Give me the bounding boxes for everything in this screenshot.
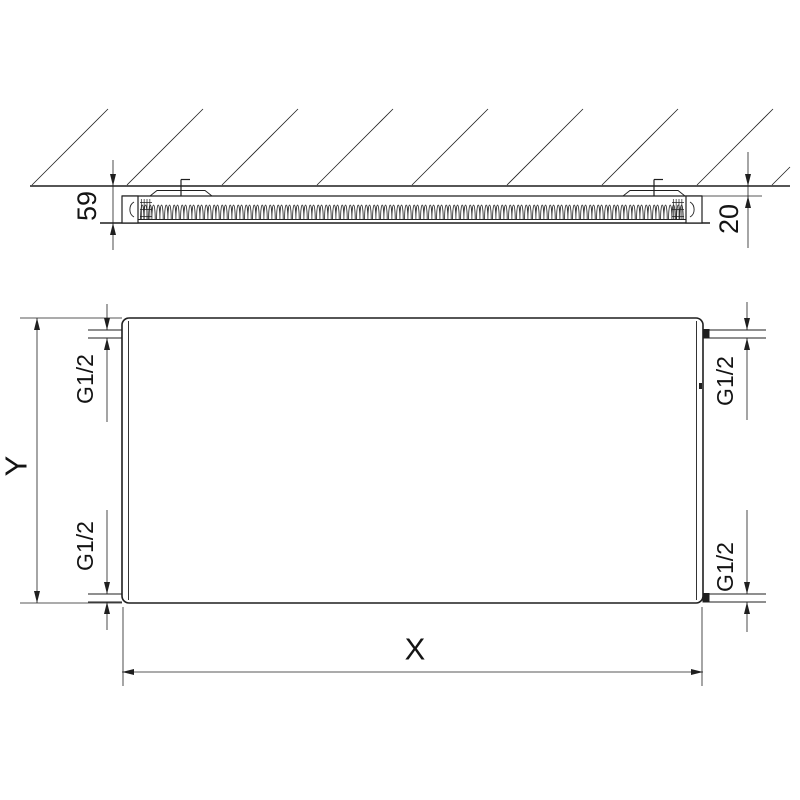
radiator-technical-drawing: 59 20 — [0, 0, 800, 800]
arrowhead-right — [691, 669, 703, 675]
top-view-section: 59 20 — [30, 109, 790, 250]
arrowhead-up — [34, 318, 40, 330]
connection-stub-top-left — [88, 330, 122, 338]
thread-size: G1/2 — [72, 354, 98, 404]
hatch-line — [602, 109, 678, 185]
thread-dimension-top-right: G1/2 — [712, 302, 750, 420]
radiator-technical-drawing-sheet: 59 20 — [0, 0, 800, 800]
thread-size: G1/2 — [72, 521, 98, 571]
wall-gap-dimension: 20 — [702, 152, 762, 248]
arrowhead-left — [122, 669, 134, 675]
hatch-line — [222, 109, 298, 185]
convector-fins-dense-left — [140, 199, 152, 220]
convector-fins-dense-right — [672, 199, 684, 220]
wall-gap-value: 20 — [714, 204, 744, 234]
stub-lines — [88, 330, 122, 338]
hatch-line — [772, 167, 790, 185]
width-dimension: X — [122, 607, 703, 686]
arrowhead-down — [110, 174, 116, 186]
arrowhead-up — [104, 602, 110, 614]
arrowhead-up — [744, 602, 750, 614]
mounting-bracket-right — [623, 180, 685, 197]
thread-dimension-bottom-right: G1/2 — [712, 510, 750, 632]
stub-lines — [703, 330, 766, 338]
width-value: X — [405, 632, 426, 667]
thread-dimension-top-left: G1/2 — [72, 304, 110, 422]
convector-fins — [140, 199, 684, 220]
arrowhead-down — [104, 582, 110, 594]
wall-hatching — [32, 109, 790, 185]
hatch-line — [32, 109, 108, 185]
hatch-line — [697, 109, 773, 185]
arrowhead-down — [744, 582, 750, 594]
front-view: Y X G1/2 G1/2 — [0, 302, 766, 686]
connection-stub-bottom-left — [88, 594, 122, 602]
arrowhead-down — [34, 591, 40, 603]
thread-size: G1/2 — [712, 356, 738, 406]
height-dimension: Y — [0, 318, 122, 603]
thread-size: G1/2 — [712, 542, 738, 592]
hatch-line — [412, 109, 488, 185]
stub-lines — [703, 594, 766, 602]
thread-dimension-bottom-left: G1/2 — [72, 510, 110, 630]
radiator-panel — [122, 318, 703, 603]
hatch-line — [127, 109, 203, 185]
height-value: Y — [0, 456, 34, 477]
hatch-line — [317, 109, 393, 185]
arrowhead-up — [110, 223, 116, 235]
hatch-line — [507, 109, 583, 185]
arrowhead-down — [744, 318, 750, 330]
connection-stub-bottom-right — [703, 593, 767, 603]
connection-stub-top-right — [703, 329, 767, 339]
arrowhead-down — [104, 318, 110, 330]
mounting-bracket-left — [150, 180, 212, 197]
arrowhead-down — [745, 174, 751, 186]
depth-dimension: 59 — [72, 160, 116, 250]
arrowhead-up — [744, 338, 750, 350]
arrowhead-up — [745, 196, 751, 208]
arrowhead-up — [104, 338, 110, 350]
stub-lines — [88, 594, 122, 602]
depth-value: 59 — [72, 191, 102, 221]
